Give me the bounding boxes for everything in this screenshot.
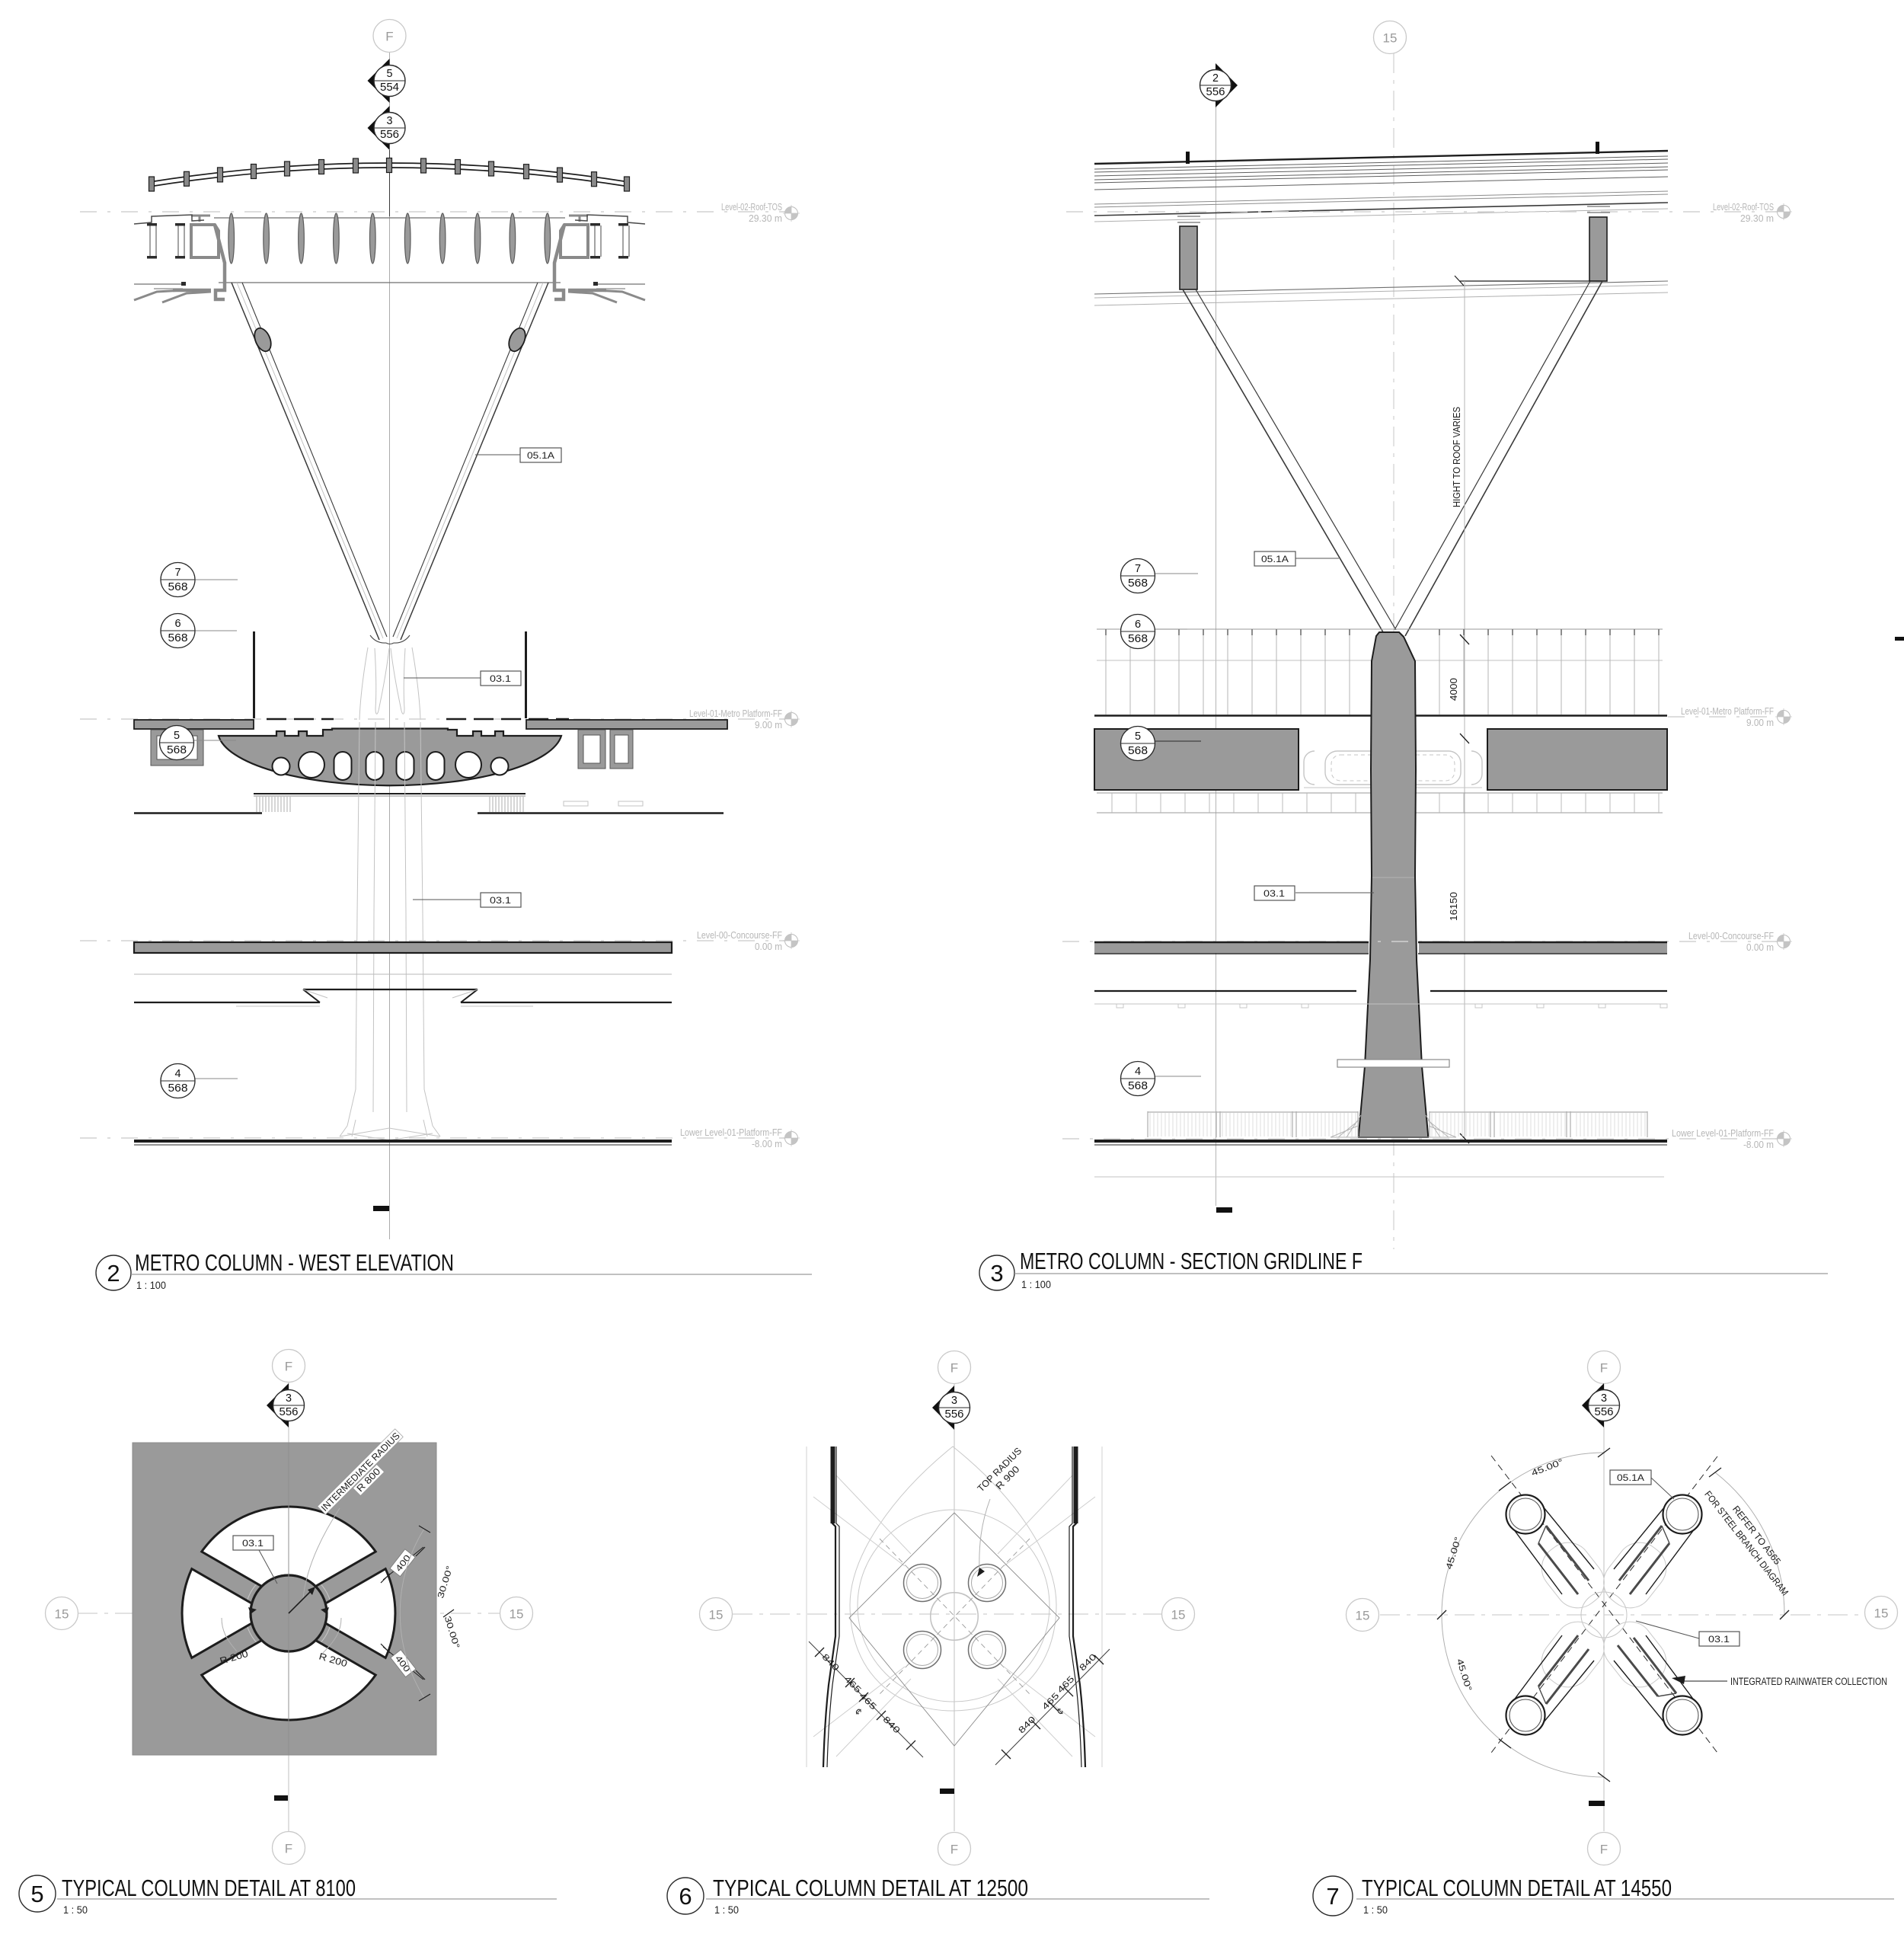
svg-text:Level-01-Metro Platform-FF: Level-01-Metro Platform-FF — [689, 708, 782, 719]
svg-text:15: 15 — [1383, 31, 1398, 46]
svg-text:TYPICAL COLUMN DETAIL AT 14550: TYPICAL COLUMN DETAIL AT 14550 — [1362, 1875, 1672, 1901]
svg-text:Level-00-Concourse-FF: Level-00-Concourse-FF — [697, 930, 782, 941]
svg-text:5: 5 — [1135, 730, 1141, 743]
svg-text:568: 568 — [168, 581, 188, 593]
svg-text:556: 556 — [280, 1406, 299, 1418]
svg-text:HIGHT TO ROOF VARIES: HIGHT TO ROOF VARIES — [1452, 407, 1462, 507]
svg-text:0.00 m: 0.00 m — [755, 941, 782, 952]
svg-text:03.1: 03.1 — [242, 1538, 264, 1549]
svg-text:F: F — [1600, 1361, 1608, 1376]
svg-text:4: 4 — [174, 1068, 180, 1080]
svg-text:7: 7 — [174, 567, 180, 579]
svg-text:15: 15 — [709, 1608, 724, 1622]
svg-text:F: F — [1600, 1843, 1608, 1857]
svg-text:9.00 m: 9.00 m — [1746, 718, 1774, 728]
svg-text:Level-02-Roof-TOS: Level-02-Roof-TOS — [721, 202, 782, 213]
svg-text:03.1: 03.1 — [490, 673, 511, 684]
svg-text:TYPICAL COLUMN DETAIL AT 12500: TYPICAL COLUMN DETAIL AT 12500 — [713, 1875, 1028, 1901]
svg-text:1 : 100: 1 : 100 — [1021, 1279, 1051, 1290]
svg-text:INTEGRATED RAINWATER COLLECTIO: INTEGRATED RAINWATER COLLECTION — [1730, 1676, 1887, 1687]
svg-text:568: 568 — [167, 744, 187, 756]
svg-text:556: 556 — [945, 1408, 964, 1421]
svg-text:15: 15 — [510, 1607, 524, 1622]
svg-text:-8.00 m: -8.00 m — [1743, 1140, 1774, 1150]
svg-text:568: 568 — [1128, 745, 1148, 757]
svg-text:5: 5 — [174, 730, 180, 742]
svg-text:16150: 16150 — [1449, 892, 1459, 921]
svg-text:Level-02-Roof-TOS: Level-02-Roof-TOS — [1713, 202, 1774, 213]
svg-text:1 : 100: 1 : 100 — [136, 1280, 166, 1291]
svg-text:4: 4 — [1135, 1066, 1141, 1078]
svg-text:568: 568 — [1128, 633, 1148, 645]
svg-text:15: 15 — [1171, 1608, 1186, 1622]
svg-text:1 : 50: 1 : 50 — [63, 1904, 88, 1916]
svg-text:TYPICAL COLUMN DETAIL AT 8100: TYPICAL COLUMN DETAIL AT 8100 — [62, 1875, 356, 1901]
svg-text:05.1A: 05.1A — [1261, 554, 1289, 564]
svg-text:F: F — [285, 1842, 292, 1856]
svg-text:5: 5 — [387, 68, 393, 80]
svg-text:3: 3 — [951, 1395, 957, 1407]
svg-text:2: 2 — [1212, 72, 1219, 85]
svg-text:Level-01-Metro Platform-FF: Level-01-Metro Platform-FF — [1681, 706, 1774, 717]
svg-text:9.00 m: 9.00 m — [755, 720, 782, 730]
svg-text:F: F — [385, 30, 393, 44]
svg-text:4000: 4000 — [1449, 678, 1459, 701]
svg-text:03.1: 03.1 — [1708, 1634, 1730, 1645]
svg-text:5: 5 — [30, 1881, 43, 1907]
svg-text:7: 7 — [1135, 563, 1141, 575]
svg-text:6: 6 — [1135, 619, 1141, 631]
svg-text:556: 556 — [1206, 86, 1225, 98]
svg-text:6: 6 — [174, 618, 180, 630]
svg-text:3: 3 — [387, 115, 393, 127]
svg-text:6: 6 — [679, 1883, 692, 1910]
svg-text:3: 3 — [1601, 1392, 1607, 1405]
svg-text:29.30 m: 29.30 m — [1740, 213, 1774, 224]
svg-text:3: 3 — [286, 1392, 292, 1405]
svg-text:05.1A: 05.1A — [1617, 1472, 1644, 1483]
svg-text:0.00 m: 0.00 m — [1746, 942, 1774, 953]
svg-text:Lower Level-01-Platform-FF: Lower Level-01-Platform-FF — [1672, 1128, 1774, 1139]
svg-text:568: 568 — [168, 1082, 188, 1095]
svg-text:15: 15 — [1874, 1606, 1889, 1621]
svg-text:1 : 50: 1 : 50 — [1363, 1904, 1388, 1916]
svg-text:29.30 m: 29.30 m — [749, 213, 782, 224]
svg-text:7: 7 — [1326, 1883, 1339, 1910]
svg-text:556: 556 — [380, 129, 399, 141]
svg-text:F: F — [950, 1843, 958, 1857]
svg-text:05.1A: 05.1A — [527, 450, 554, 461]
svg-text:-8.00 m: -8.00 m — [752, 1139, 782, 1149]
svg-text:568: 568 — [168, 632, 188, 644]
svg-text:1 : 50: 1 : 50 — [714, 1904, 739, 1916]
svg-text:568: 568 — [1128, 1080, 1148, 1092]
svg-text:3: 3 — [990, 1260, 1003, 1287]
svg-text:F: F — [950, 1361, 958, 1376]
svg-text:Lower Level-01-Platform-FF: Lower Level-01-Platform-FF — [680, 1127, 782, 1138]
svg-text:556: 556 — [1595, 1406, 1614, 1418]
svg-text:03.1: 03.1 — [490, 895, 511, 906]
svg-text:Level-00-Concourse-FF: Level-00-Concourse-FF — [1688, 931, 1774, 941]
svg-text:15: 15 — [1356, 1609, 1370, 1623]
svg-text:554: 554 — [380, 82, 399, 94]
svg-text:03.1: 03.1 — [1263, 888, 1285, 899]
svg-text:METRO COLUMN - SECTION GRIDLIN: METRO COLUMN - SECTION GRIDLINE F — [1020, 1248, 1363, 1274]
svg-text:2: 2 — [107, 1260, 120, 1287]
svg-text:15: 15 — [55, 1607, 69, 1622]
svg-text:F: F — [285, 1360, 292, 1374]
svg-text:METRO COLUMN - WEST ELEVATION: METRO COLUMN - WEST ELEVATION — [135, 1249, 454, 1276]
svg-text:568: 568 — [1128, 577, 1148, 590]
